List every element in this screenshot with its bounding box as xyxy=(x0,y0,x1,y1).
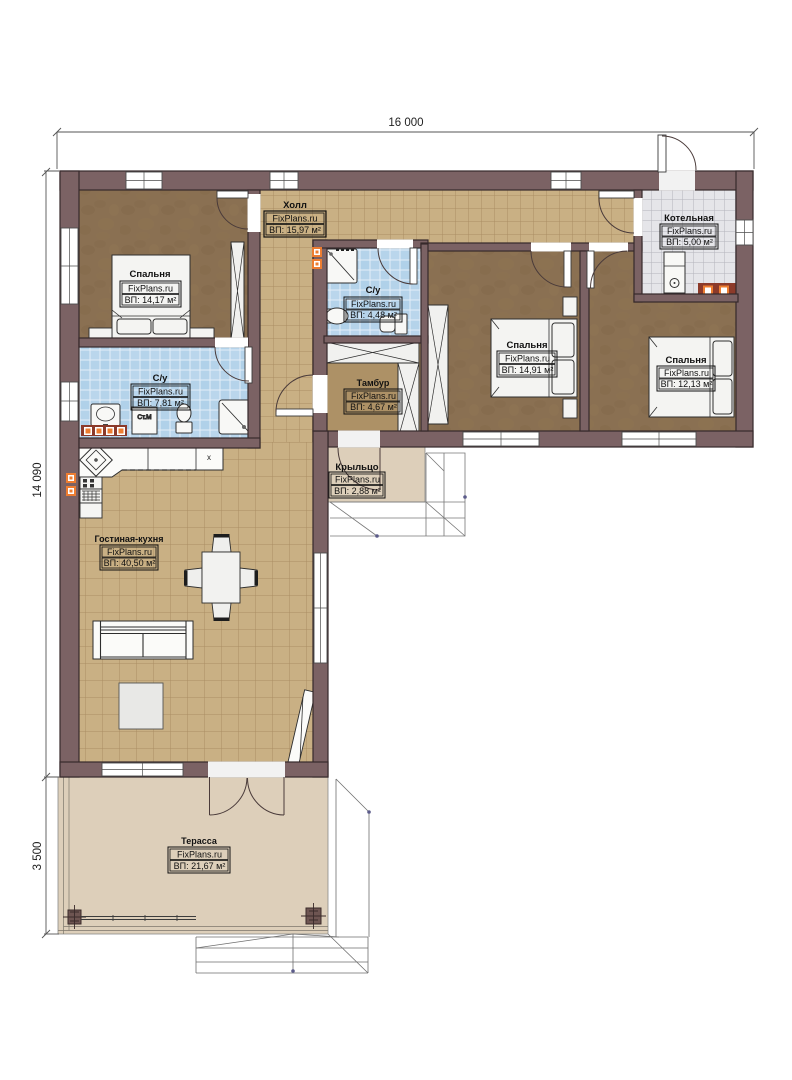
svg-text:ВП: 2,88 м²: ВП: 2,88 м² xyxy=(334,486,381,496)
svg-text:ВП: 40,50 м²: ВП: 40,50 м² xyxy=(104,558,156,568)
svg-text:ВП: 4,67 м²: ВП: 4,67 м² xyxy=(350,402,397,412)
svg-text:ВП: 12,13 м²: ВП: 12,13 м² xyxy=(661,379,713,389)
svg-text:ВП: 4,48 м²: ВП: 4,48 м² xyxy=(350,310,397,320)
svg-text:Крыльцо: Крыльцо xyxy=(335,462,378,473)
svg-text:Терасса: Терасса xyxy=(181,836,218,846)
svg-text:FixPlans.ru: FixPlans.ru xyxy=(335,475,380,485)
svg-text:FixPlans.ru: FixPlans.ru xyxy=(107,547,152,557)
svg-text:FixPlans.ru: FixPlans.ru xyxy=(667,226,712,236)
svg-text:FixPlans.ru: FixPlans.ru xyxy=(505,354,550,364)
svg-text:ВП: 7,81 м²: ВП: 7,81 м² xyxy=(137,398,184,408)
svg-text:FixPlans.ru: FixPlans.ru xyxy=(351,391,396,401)
svg-text:ВП: 5,00 м²: ВП: 5,00 м² xyxy=(666,237,713,247)
svg-text:FixPlans.ru: FixPlans.ru xyxy=(272,214,317,224)
svg-text:14 090: 14 090 xyxy=(32,462,44,497)
svg-text:Спальня: Спальня xyxy=(665,355,706,366)
svg-text:С/у: С/у xyxy=(366,285,382,296)
svg-text:3 500: 3 500 xyxy=(32,842,44,871)
svg-text:х: х xyxy=(207,453,211,462)
svg-text:ВП: 14,17 м²: ВП: 14,17 м² xyxy=(125,295,177,305)
svg-text:FixPlans.ru: FixPlans.ru xyxy=(664,368,709,378)
svg-text:FixPlans.ru: FixPlans.ru xyxy=(351,299,396,309)
svg-text:Тамбур: Тамбур xyxy=(357,378,390,388)
svg-text:FixPlans.ru: FixPlans.ru xyxy=(177,850,222,860)
svg-text:Ст.М: Ст.М xyxy=(137,414,151,421)
svg-text:16 000: 16 000 xyxy=(388,117,423,129)
svg-text:ВП: 21,67 м²: ВП: 21,67 м² xyxy=(174,861,226,871)
svg-text:ВП: 14,91 м²: ВП: 14,91 м² xyxy=(502,365,554,375)
svg-text:FixPlans.ru: FixPlans.ru xyxy=(128,284,173,294)
svg-text:С/у: С/у xyxy=(153,373,169,384)
svg-text:ВП: 15,97 м²: ВП: 15,97 м² xyxy=(269,225,321,235)
svg-text:Холл: Холл xyxy=(283,200,307,211)
svg-text:Спальня: Спальня xyxy=(129,269,170,280)
svg-text:Гостиная-кухня: Гостиная-кухня xyxy=(95,534,164,544)
svg-text:FixPlans.ru: FixPlans.ru xyxy=(138,387,183,397)
svg-text:Спальня: Спальня xyxy=(506,340,547,351)
svg-text:Котельная: Котельная xyxy=(664,213,714,224)
